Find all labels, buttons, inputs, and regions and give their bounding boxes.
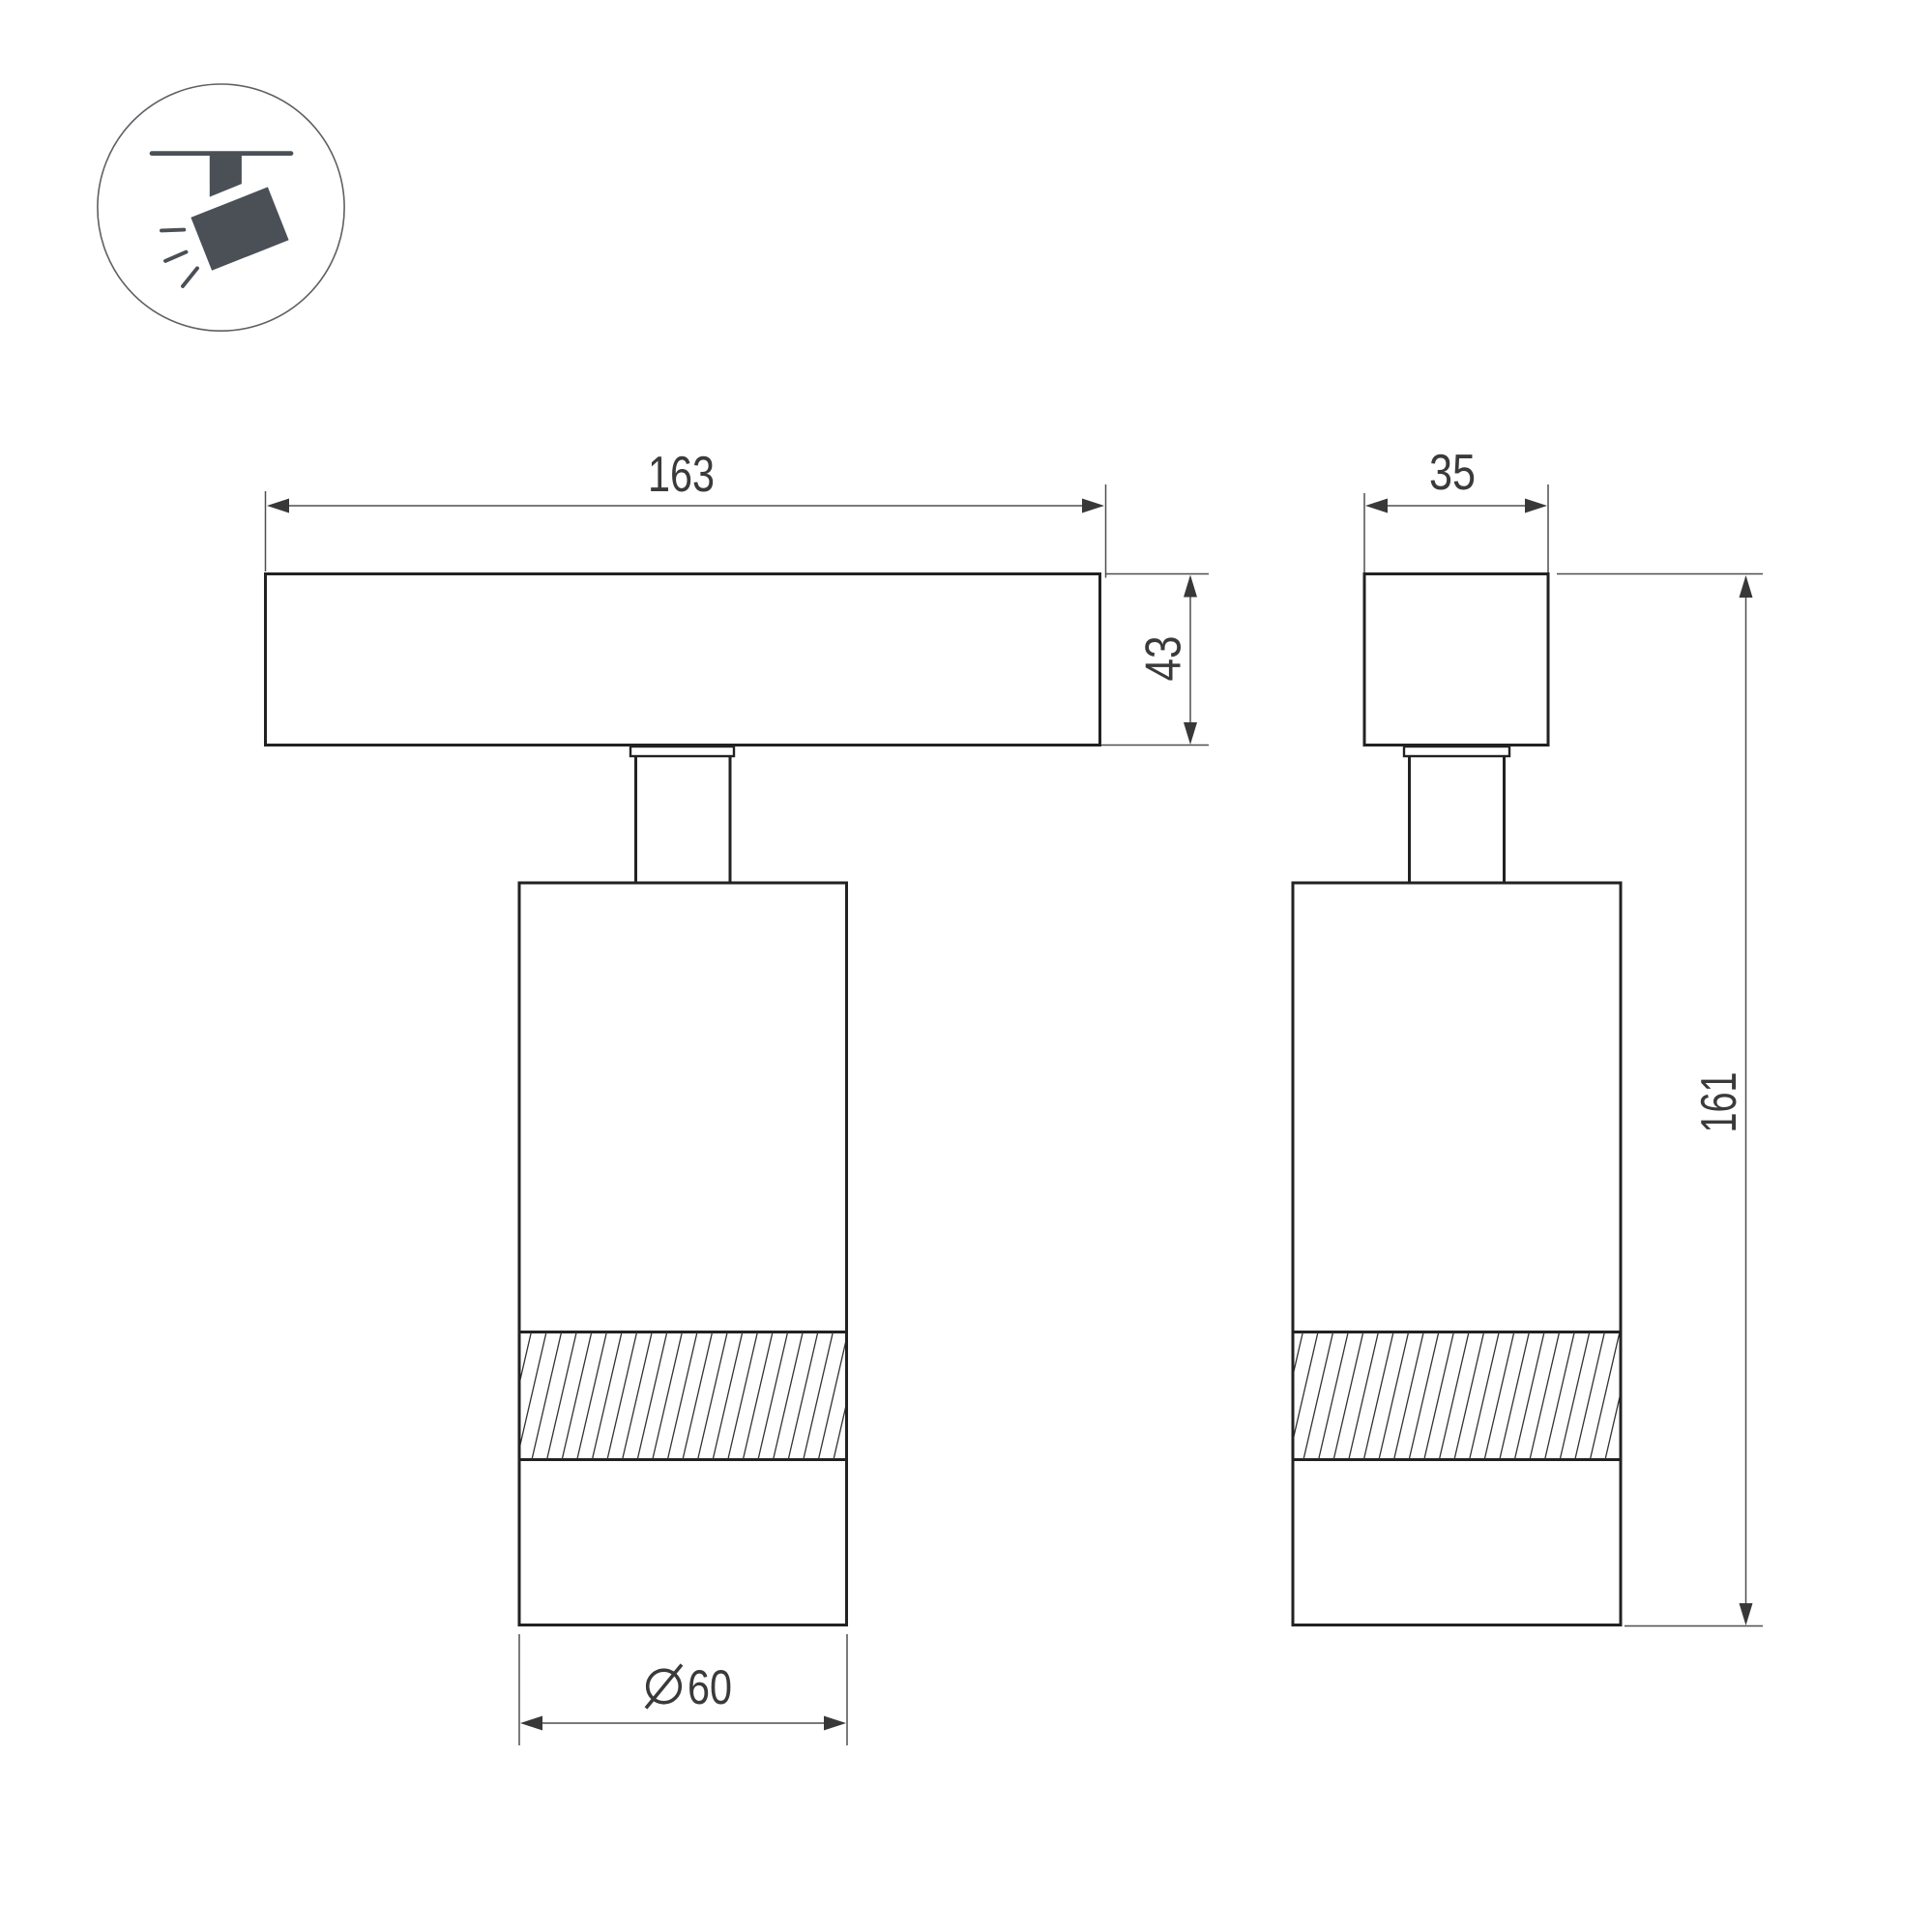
svg-text:35: 35 <box>1429 445 1476 501</box>
svg-text:60: 60 <box>688 1660 732 1714</box>
svg-text:161: 161 <box>1691 1072 1747 1133</box>
svg-text:43: 43 <box>1136 636 1192 682</box>
svg-text:163: 163 <box>648 447 715 503</box>
